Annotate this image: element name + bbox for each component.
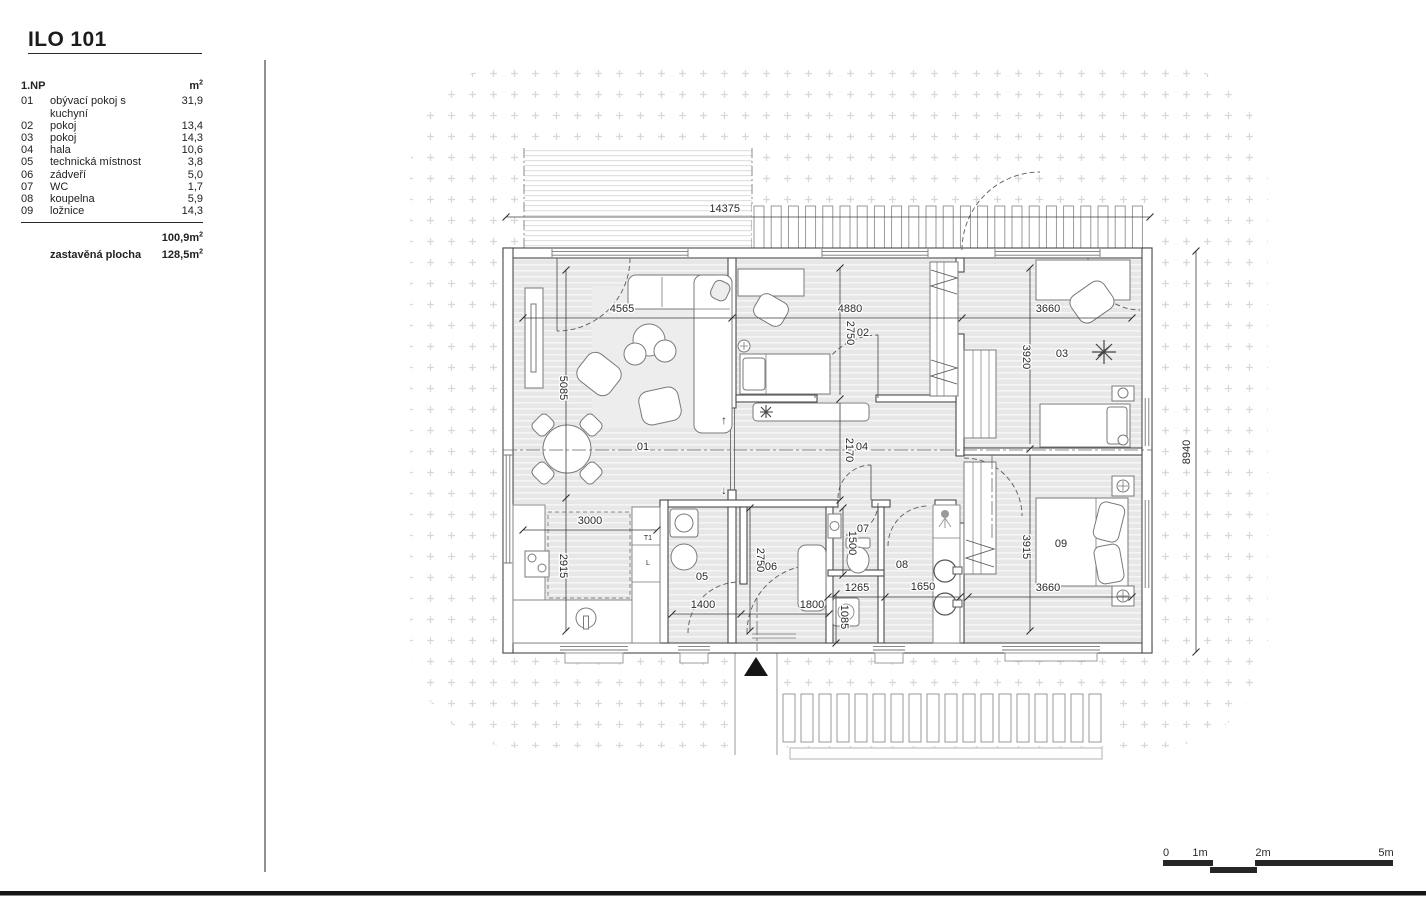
cabinet-label: T1 [644,535,652,542]
floor-plan: 1437545654880366050852750392021702915300… [0,0,1426,898]
built-up-value: 128,5m2 [162,249,203,261]
scale-label: 5m [1378,847,1393,859]
room-table-row: 03pokoj14,3 [21,132,203,144]
dim-label: 3000 [578,515,602,527]
room-table-cell-no: 08 [21,193,50,205]
scale-bar [1163,860,1393,873]
slat [1132,206,1142,250]
slat [1017,694,1029,742]
room-table-cell-no: 04 [21,144,50,156]
dim-label: 2915 [557,554,569,578]
slat [840,206,850,250]
slat [943,206,953,250]
slat [891,694,903,742]
total-area: 100,9m2 [21,232,203,244]
slat [1012,206,1022,250]
dim-label: 8940 [1181,440,1193,464]
room-table-cell-ar: 5,0 [165,169,203,181]
slat [909,206,919,250]
room-table-cell-ar: 13,4 [165,120,203,132]
dim-label: 1085 [838,605,850,629]
room-label: 02 [857,327,869,339]
cooktop [525,551,549,577]
shelving [964,350,996,438]
room-table-cell-no: 01 [21,95,50,119]
level-arrow-up: ↑ [721,413,727,427]
room-table-cell-ar: 14,3 [165,132,203,144]
slat [771,206,781,250]
slat [999,694,1011,742]
room-table-row: 02pokoj13,4 [21,120,203,132]
room-label: 08 [896,559,908,571]
room-table-cell-no: 02 [21,120,50,132]
slat [1115,206,1125,250]
slat [783,694,795,742]
room-label: 03 [1056,348,1068,360]
slat [1064,206,1074,250]
built-up-area: zastavěná plocha 128,5m2 [21,249,203,261]
dim-label: 3920 [1020,345,1032,369]
room-table-cell-ar: 31,9 [165,95,203,119]
dim-label: 1800 [800,599,824,611]
slat [1046,206,1056,250]
boiler [671,544,697,570]
dim-label: 5085 [557,376,569,400]
slat [995,206,1005,250]
room-table-row: 08koupelna5,9 [21,193,203,205]
slat [892,206,902,250]
slat [819,694,831,742]
slat [1035,694,1047,742]
table-rule [21,222,203,223]
lamp [1118,435,1128,445]
sheet-footer-rule [0,891,1426,896]
room-table-cell-no: 07 [21,181,50,193]
slat [981,694,993,742]
dining-table [543,425,591,473]
slat [1089,694,1101,742]
room-label: 04 [856,441,868,453]
level-arrow-down: ↓ [721,483,727,497]
dim-label: 4565 [610,303,634,315]
terrace-step [790,748,1102,759]
room-table-cell-no: 09 [21,205,50,217]
title-underline [28,53,202,54]
dim-label: 14375 [709,203,740,215]
room-table-row: 05technická místnost3,8 [21,156,203,168]
slat [855,694,867,742]
slat [926,206,936,250]
dim-label: 3915 [1020,535,1032,559]
room-table-cell-ar: 14,3 [165,205,203,217]
room-table-cell-nm: pokoj [50,120,165,132]
slat [823,206,833,250]
panel-divider [264,60,266,872]
slat [945,694,957,742]
dim-label: 3660 [1036,582,1060,594]
room-label: 05 [696,571,708,583]
slat [1071,694,1083,742]
scale-label: 0 [1163,847,1169,859]
slat [909,694,921,742]
room-table-cell-nm: pokoj [50,132,165,144]
porch-canopy [524,148,752,250]
room-table-cell-no: 06 [21,169,50,181]
dim-label: 1400 [691,599,715,611]
drawing-title: ILO 101 [28,34,203,46]
slat [857,206,867,250]
room-table-cell-ar: 5,9 [165,193,203,205]
room-table-row: 09ložnice14,3 [21,205,203,217]
slat [873,694,885,742]
scale-label: 1m [1192,847,1207,859]
room-table-cell-nm: hala [50,144,165,156]
dim-label: 2750 [844,321,856,345]
slat [927,694,939,742]
slat [806,206,816,250]
slat [874,206,884,250]
slat [963,694,975,742]
desk [738,269,804,296]
room-table-cell-nm: technická místnost [50,156,165,168]
unit-header: m2 [189,80,203,92]
slat [801,694,813,742]
room-table-cell-nm: koupelna [50,193,165,205]
dim-label: 3660 [1036,303,1060,315]
room-table-row: 07WC1,7 [21,181,203,193]
shower-icon [941,510,949,518]
room-table-cell-no: 05 [21,156,50,168]
slat [960,206,970,250]
room-table-row: 01obývací pokoj s kuchyní31,9 [21,95,203,119]
room-table-cell-nm: WC [50,181,165,193]
slat [978,206,988,250]
pergola-slats [754,206,1142,250]
floor-label: 1.NP [21,80,45,92]
dim-label: 2170 [843,438,855,462]
room-table: 01obývací pokoj s kuchyní31,902pokoj13,4… [21,95,203,217]
legend-panel: ILO 101 1.NP m2 01obývací pokoj s kuchyn… [21,34,203,261]
room-label: 09 [1055,538,1067,550]
kitchen-tall-units [632,507,660,643]
slat [788,206,798,250]
slat [1098,206,1108,250]
room-table-cell-nm: obývací pokoj s kuchyní [50,95,165,119]
cabinet-label: L [646,560,650,567]
room-table-cell-ar: 1,7 [165,181,203,193]
lamp [1118,388,1128,398]
room-table-row: 04hala10,6 [21,144,203,156]
room-table-cell-ar: 10,6 [165,144,203,156]
room-table-cell-nm: ložnice [50,205,165,217]
room-table-cell-no: 03 [21,132,50,144]
drawing-sheet: { "title": "ILO 101", "legend": { "floor… [0,0,1426,898]
room-table-row: 06zádveří5,0 [21,169,203,181]
room-label: 07 [857,523,869,535]
built-up-label: zastavěná plocha [50,249,162,261]
slat [754,206,764,250]
slat [837,694,849,742]
slat [1029,206,1039,250]
legend-header: 1.NP m2 [21,80,203,92]
room-label: 01 [637,441,649,453]
room-table-cell-ar: 3,8 [165,156,203,168]
dim-label: 1650 [911,581,935,593]
room-label: 06 [765,561,777,573]
scale-label: 2m [1255,847,1270,859]
room-table-cell-nm: zádveří [50,169,165,181]
slat [1081,206,1091,250]
dim-label: 4880 [838,303,862,315]
slat [1053,694,1065,742]
dim-label: 1265 [845,582,869,594]
